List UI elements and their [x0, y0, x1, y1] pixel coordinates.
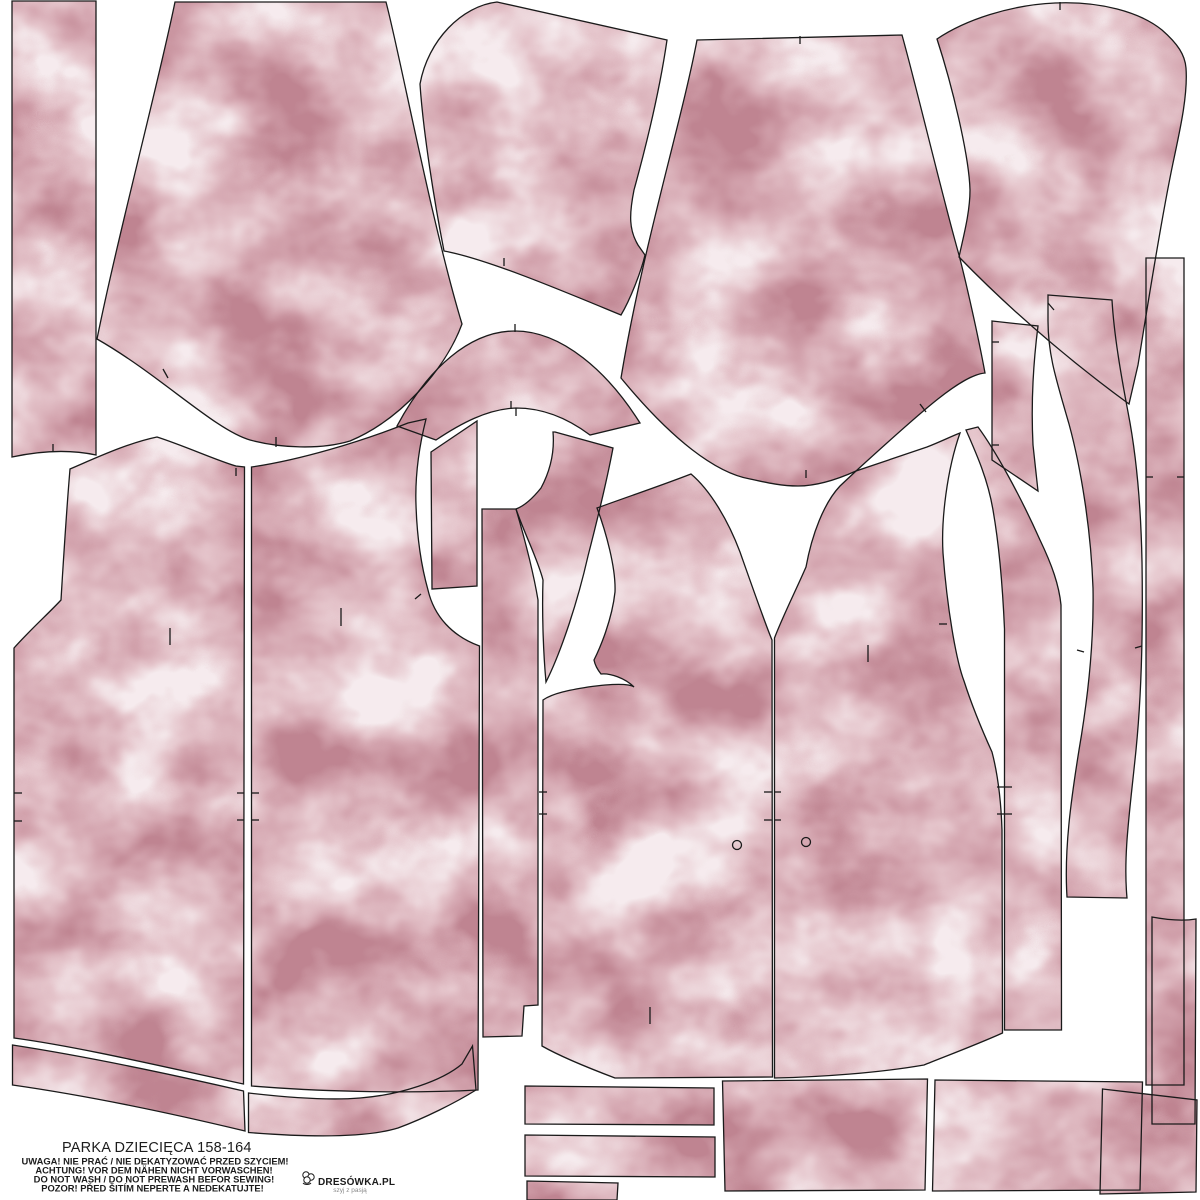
- svg-text:PARKA DZIECIĘCA 158-164: PARKA DZIECIĘCA 158-164: [62, 1140, 252, 1156]
- svg-text:POZOR! PŘED ŠITÍM NEPERTE A NE: POZOR! PŘED ŠITÍM NEPERTE A NEDEKATUJTE!: [41, 1183, 264, 1194]
- svg-text:szyj z pasją: szyj z pasją: [333, 1187, 367, 1194]
